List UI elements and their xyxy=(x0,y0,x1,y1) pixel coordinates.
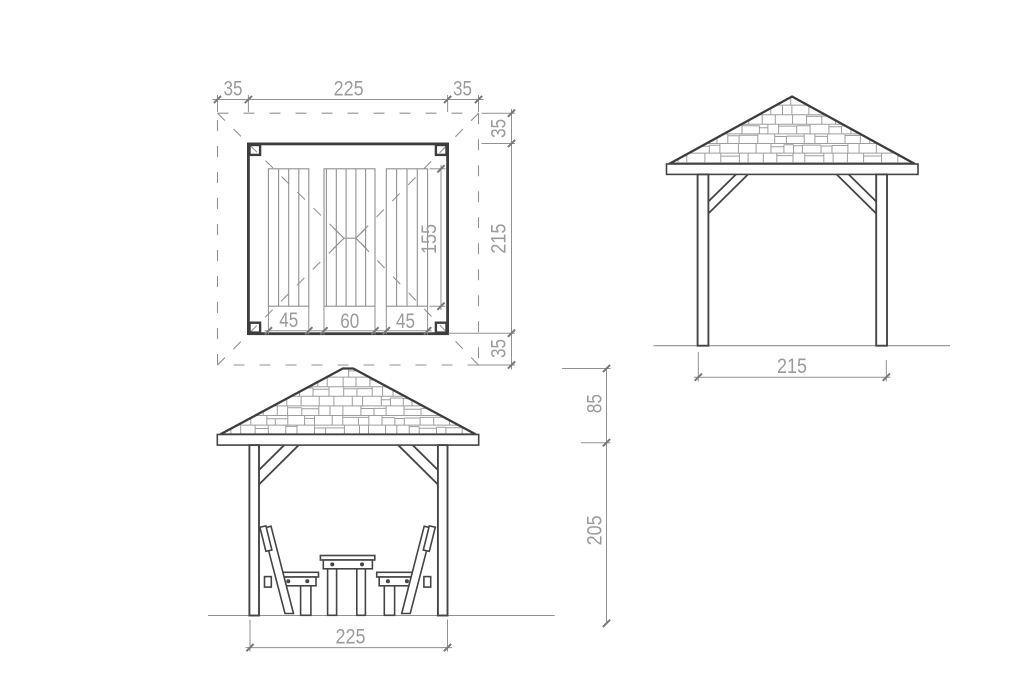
svg-text:225: 225 xyxy=(334,77,364,100)
svg-text:205: 205 xyxy=(584,515,607,545)
svg-text:215: 215 xyxy=(777,355,807,378)
svg-text:45: 45 xyxy=(396,310,415,333)
svg-text:225: 225 xyxy=(336,626,366,649)
svg-text:215: 215 xyxy=(488,224,511,254)
svg-text:35: 35 xyxy=(488,339,511,358)
svg-text:45: 45 xyxy=(279,309,298,332)
svg-text:35: 35 xyxy=(453,77,472,100)
svg-text:60: 60 xyxy=(340,310,359,333)
svg-text:35: 35 xyxy=(224,77,243,100)
svg-text:155: 155 xyxy=(418,224,441,254)
svg-text:35: 35 xyxy=(488,119,511,138)
svg-text:85: 85 xyxy=(584,394,607,413)
